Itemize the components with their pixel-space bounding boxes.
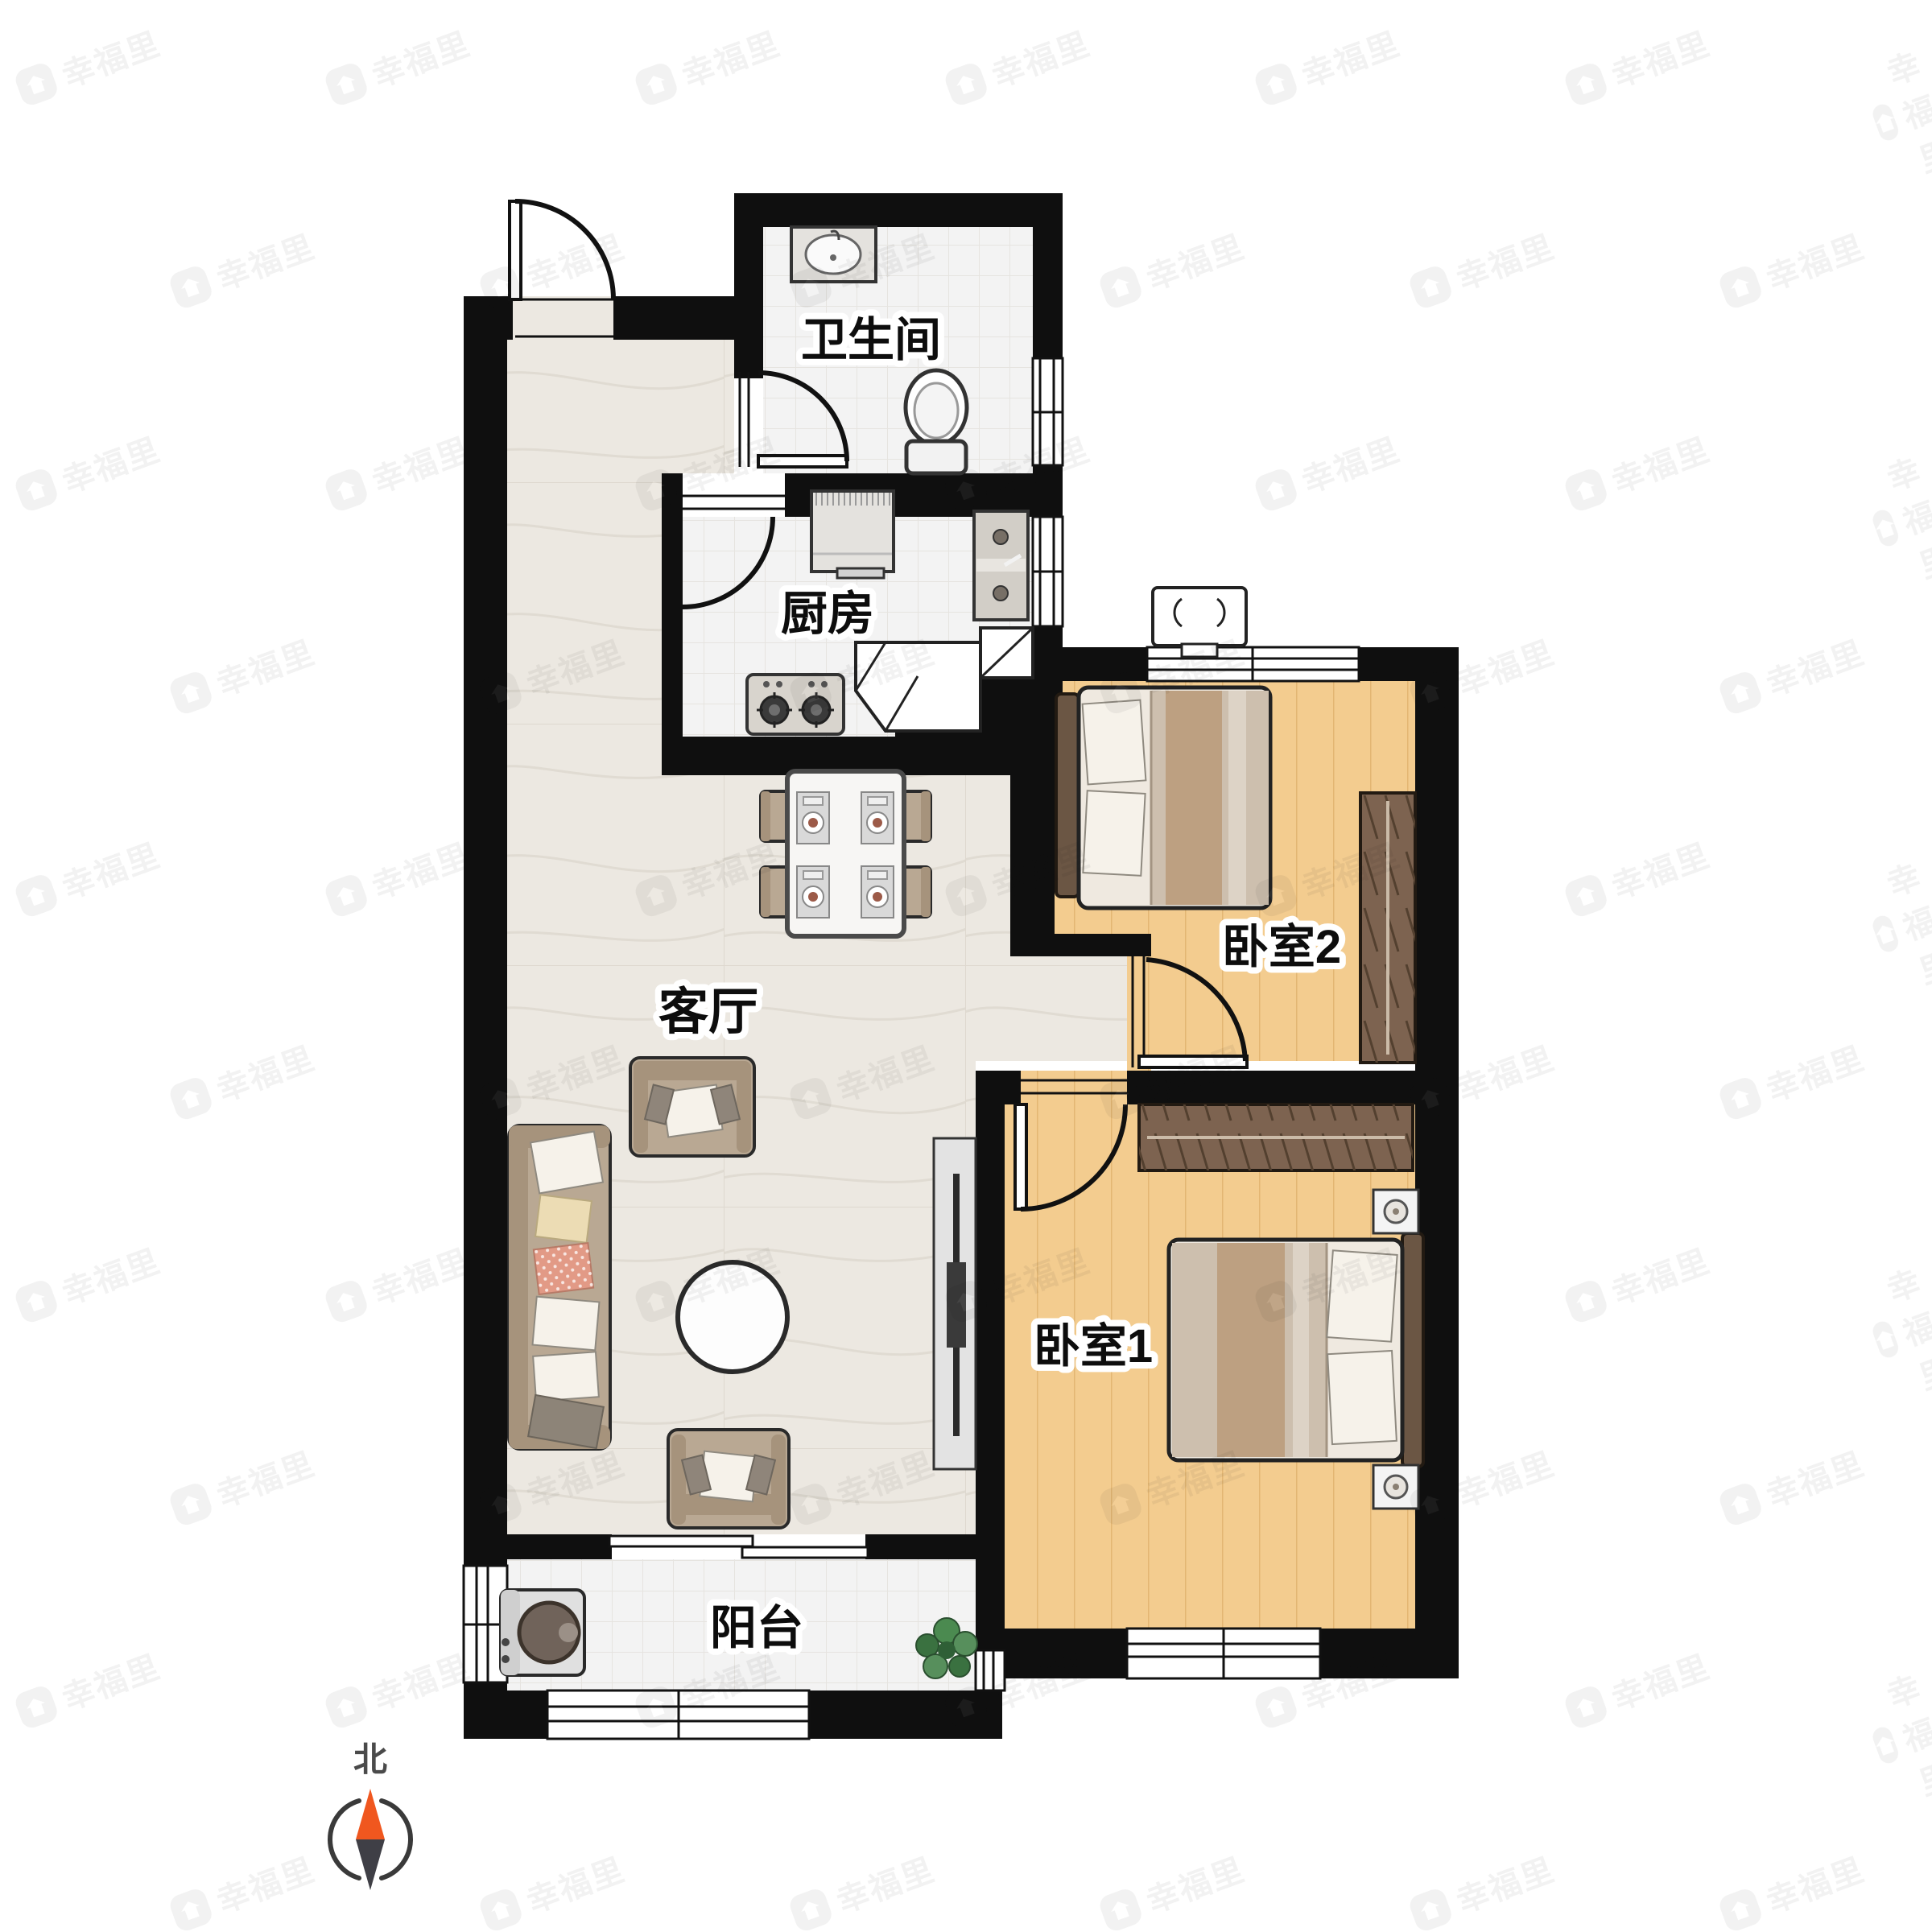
threshold-bedroom1	[1021, 1071, 1127, 1104]
nightstand	[1373, 1190, 1418, 1233]
wall	[1033, 227, 1063, 358]
north-label: 北	[353, 1740, 387, 1778]
room-label-bedroom2: 卧室2	[1222, 921, 1341, 973]
compass-needle-north-icon	[356, 1789, 385, 1839]
place-setting	[797, 792, 829, 844]
wall	[809, 1690, 1002, 1739]
room-label-bedroom1: 卧室1	[1034, 1320, 1153, 1373]
window-kitchen	[1033, 517, 1063, 626]
coffee-table	[678, 1262, 787, 1372]
wall	[1005, 1629, 1127, 1678]
compass-needle-south-icon	[356, 1839, 385, 1890]
floor-plan-canvas: 卫生间 厨房 客厅 卧室2 卧室1 阳台 北 幸福里幸福里幸福里幸福里幸福里幸福…	[0, 0, 1932, 1932]
armchair-top	[630, 1058, 754, 1156]
wall	[976, 1071, 1021, 1104]
toilet	[906, 370, 967, 473]
wall	[1010, 668, 1055, 934]
wall	[1010, 934, 1151, 956]
wall	[865, 1534, 976, 1559]
wall	[1320, 1629, 1415, 1678]
room-label-bathroom: 卫生间	[801, 314, 941, 366]
place-setting	[797, 866, 829, 918]
wall	[734, 193, 1063, 227]
threshold-entry	[513, 296, 613, 340]
wall	[976, 1629, 1005, 1650]
balcony-sliding-door	[609, 1536, 868, 1558]
bathroom-sink	[791, 227, 876, 282]
armchair-bottom	[668, 1430, 789, 1528]
wall	[464, 340, 507, 1534]
wall	[464, 1690, 547, 1739]
window-bathroom	[1033, 358, 1063, 465]
dining-table-set	[761, 771, 931, 936]
tv-stand	[934, 1138, 976, 1469]
wardrobe-bedroom2	[1360, 793, 1415, 1063]
wall	[662, 517, 683, 775]
room-label-living: 客厅	[658, 985, 758, 1040]
threshold-bedroom2	[1127, 956, 1151, 1071]
compass: 北	[330, 1740, 411, 1890]
place-setting	[861, 792, 894, 844]
wall	[1033, 465, 1063, 517]
floor-plan: 卫生间 厨房 客厅 卧室2 卧室1 阳台 北	[0, 0, 1932, 1932]
wall	[734, 227, 763, 378]
wall	[464, 1534, 507, 1566]
window-bedroom1	[1127, 1629, 1320, 1678]
window-bedroom2	[1147, 647, 1359, 681]
bed-bedroom1	[1169, 1233, 1423, 1467]
bed-bedroom2	[1056, 687, 1270, 908]
wall	[1415, 647, 1459, 1678]
kitchen-sink	[974, 511, 1028, 620]
place-setting	[861, 866, 894, 918]
wall	[662, 473, 683, 517]
sofa	[509, 1125, 610, 1449]
nightstand	[1373, 1465, 1418, 1509]
wall	[976, 1104, 1005, 1629]
wall	[1127, 1071, 1415, 1104]
room-label-balcony: 阳台	[710, 1602, 803, 1654]
wall	[464, 296, 513, 340]
window-balcony-bottom	[547, 1690, 809, 1739]
stove	[747, 675, 844, 734]
washing-machine	[501, 1590, 584, 1675]
wall	[507, 1534, 612, 1559]
fridge	[811, 491, 894, 578]
ac-unit	[1153, 588, 1246, 657]
wardrobe-bedroom1	[1139, 1104, 1413, 1170]
window-balcony-right	[976, 1650, 1005, 1690]
room-label-kitchen: 厨房	[781, 588, 874, 640]
